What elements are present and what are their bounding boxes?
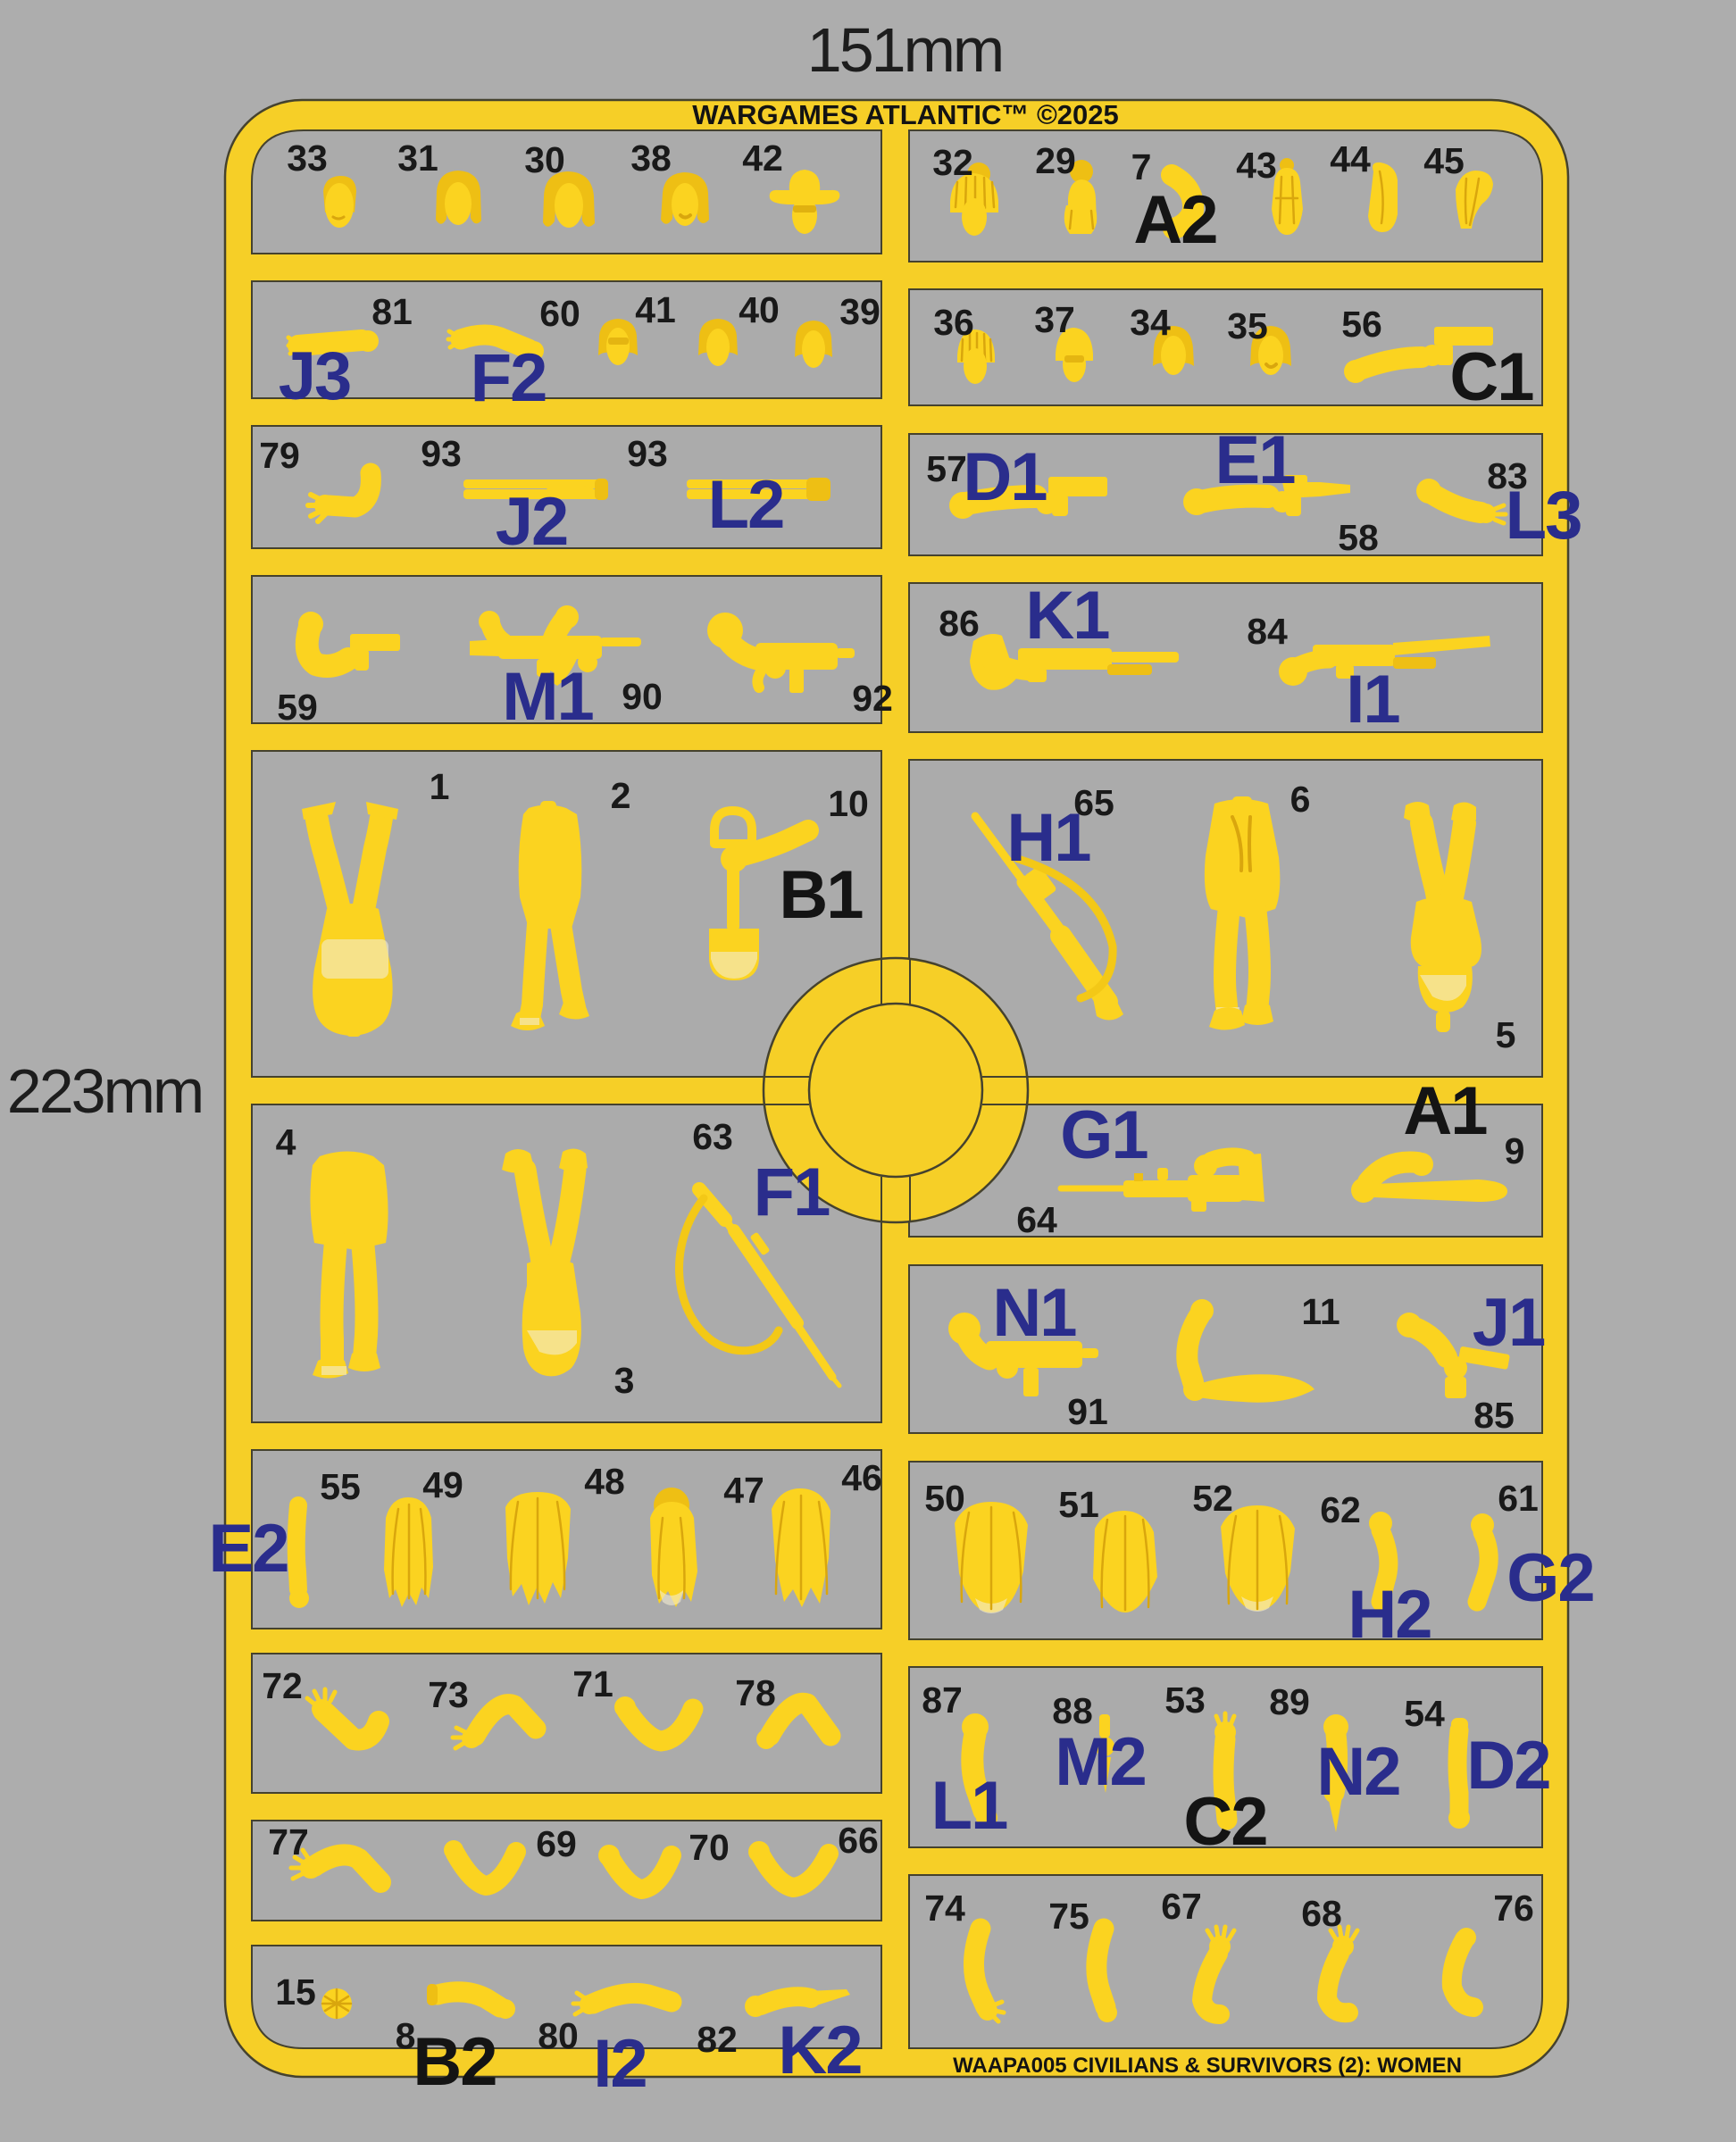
svg-text:70: 70	[689, 1827, 730, 1868]
svg-text:90: 90	[622, 676, 663, 717]
svg-text:47: 47	[723, 1470, 764, 1511]
svg-text:E2: E2	[209, 1511, 288, 1587]
svg-text:59: 59	[277, 687, 318, 728]
svg-text:B1: B1	[779, 857, 863, 933]
svg-text:91: 91	[1067, 1391, 1108, 1432]
svg-text:86: 86	[939, 603, 980, 644]
svg-text:G1: G1	[1060, 1097, 1148, 1173]
svg-text:M2: M2	[1055, 1724, 1146, 1800]
svg-text:84: 84	[1247, 611, 1288, 652]
svg-text:151mm: 151mm	[807, 15, 1002, 85]
svg-text:76: 76	[1493, 1888, 1534, 1929]
svg-text:62: 62	[1320, 1489, 1361, 1530]
svg-text:37: 37	[1034, 299, 1075, 340]
svg-text:51: 51	[1058, 1484, 1099, 1525]
svg-text:B2: B2	[413, 2024, 496, 2100]
svg-text:1: 1	[430, 766, 450, 807]
svg-text:11: 11	[1301, 1291, 1340, 1332]
svg-text:46: 46	[841, 1457, 882, 1498]
svg-text:J1: J1	[1473, 1285, 1545, 1361]
svg-text:60: 60	[539, 293, 580, 334]
svg-text:31: 31	[397, 138, 438, 179]
svg-text:N2: N2	[1316, 1734, 1399, 1810]
svg-text:93: 93	[421, 433, 462, 474]
svg-text:A2: A2	[1133, 182, 1216, 258]
svg-text:48: 48	[584, 1461, 625, 1502]
svg-text:9: 9	[1505, 1130, 1525, 1171]
svg-text:K2: K2	[778, 2013, 861, 2088]
svg-text:68: 68	[1301, 1893, 1342, 1934]
svg-text:93: 93	[627, 433, 668, 474]
svg-text:C1: C1	[1449, 339, 1533, 415]
svg-text:67: 67	[1161, 1886, 1202, 1927]
svg-text:79: 79	[259, 435, 300, 476]
svg-text:6: 6	[1290, 779, 1311, 820]
svg-text:30: 30	[524, 139, 565, 180]
svg-text:I1: I1	[1346, 662, 1399, 738]
svg-text:69: 69	[536, 1823, 577, 1864]
svg-text:73: 73	[428, 1674, 469, 1715]
svg-text:38: 38	[630, 138, 672, 179]
svg-text:33: 33	[287, 138, 328, 179]
svg-text:N1: N1	[992, 1275, 1076, 1351]
svg-text:WARGAMES ATLANTIC™ ©2025: WARGAMES ATLANTIC™ ©2025	[692, 99, 1119, 130]
svg-text:56: 56	[1341, 304, 1382, 345]
svg-text:C2: C2	[1183, 1784, 1266, 1860]
svg-text:53: 53	[1164, 1679, 1206, 1721]
svg-text:34: 34	[1130, 302, 1171, 343]
svg-text:2: 2	[611, 775, 631, 816]
svg-text:L2: L2	[708, 467, 784, 543]
svg-text:223mm: 223mm	[7, 1056, 202, 1126]
svg-text:10: 10	[828, 783, 869, 824]
svg-text:74: 74	[924, 1888, 965, 1929]
svg-text:82: 82	[697, 2019, 738, 2060]
svg-text:63: 63	[692, 1116, 733, 1157]
svg-text:58: 58	[1338, 517, 1379, 558]
svg-text:71: 71	[572, 1663, 613, 1704]
svg-text:M1: M1	[502, 659, 593, 735]
svg-text:78: 78	[735, 1672, 776, 1713]
svg-text:35: 35	[1227, 305, 1268, 346]
svg-text:39: 39	[839, 291, 881, 332]
svg-text:D2: D2	[1466, 1728, 1549, 1804]
svg-text:5: 5	[1496, 1014, 1516, 1055]
svg-text:55: 55	[320, 1466, 361, 1507]
svg-text:32: 32	[932, 142, 973, 183]
svg-text:87: 87	[922, 1679, 963, 1721]
svg-text:K1: K1	[1025, 578, 1109, 654]
svg-text:52: 52	[1192, 1478, 1233, 1519]
svg-text:J2: J2	[496, 484, 568, 560]
svg-text:44: 44	[1330, 138, 1371, 179]
svg-text:77: 77	[268, 1821, 309, 1863]
svg-text:57: 57	[926, 448, 967, 489]
svg-text:66: 66	[838, 1820, 879, 1861]
svg-text:41: 41	[635, 289, 676, 330]
svg-text:J3: J3	[279, 338, 351, 414]
svg-text:89: 89	[1269, 1681, 1310, 1722]
svg-text:75: 75	[1048, 1896, 1089, 1937]
svg-text:72: 72	[262, 1665, 303, 1706]
svg-text:D1: D1	[963, 439, 1047, 515]
svg-text:E1: E1	[1215, 422, 1296, 498]
svg-text:WAAPA005 CIVILIANS & SURVIVORS: WAAPA005 CIVILIANS & SURVIVORS (2): WOME…	[953, 2054, 1462, 2078]
svg-text:L3: L3	[1506, 478, 1582, 554]
svg-text:H1: H1	[1006, 800, 1090, 876]
svg-text:50: 50	[924, 1478, 965, 1519]
svg-text:I2: I2	[593, 2026, 646, 2102]
svg-text:80: 80	[538, 2015, 579, 2056]
svg-text:4: 4	[276, 1121, 296, 1163]
svg-text:15: 15	[275, 1971, 316, 2013]
svg-text:64: 64	[1016, 1199, 1057, 1240]
svg-text:F1: F1	[754, 1154, 830, 1230]
svg-text:61: 61	[1498, 1478, 1539, 1519]
svg-text:92: 92	[852, 678, 893, 719]
svg-text:H2: H2	[1348, 1577, 1431, 1653]
svg-text:81: 81	[371, 291, 413, 332]
svg-text:L1: L1	[931, 1768, 1007, 1844]
svg-text:54: 54	[1404, 1693, 1445, 1734]
svg-text:A1: A1	[1403, 1073, 1487, 1149]
svg-text:42: 42	[742, 138, 783, 179]
svg-text:40: 40	[739, 289, 780, 330]
svg-text:G2: G2	[1506, 1540, 1593, 1616]
svg-text:49: 49	[422, 1464, 463, 1505]
svg-text:43: 43	[1236, 145, 1277, 186]
svg-text:36: 36	[933, 302, 974, 343]
svg-text:F2: F2	[471, 340, 547, 416]
svg-text:85: 85	[1473, 1395, 1515, 1436]
svg-text:3: 3	[614, 1360, 635, 1401]
svg-text:45: 45	[1423, 140, 1465, 181]
svg-text:29: 29	[1035, 140, 1076, 181]
